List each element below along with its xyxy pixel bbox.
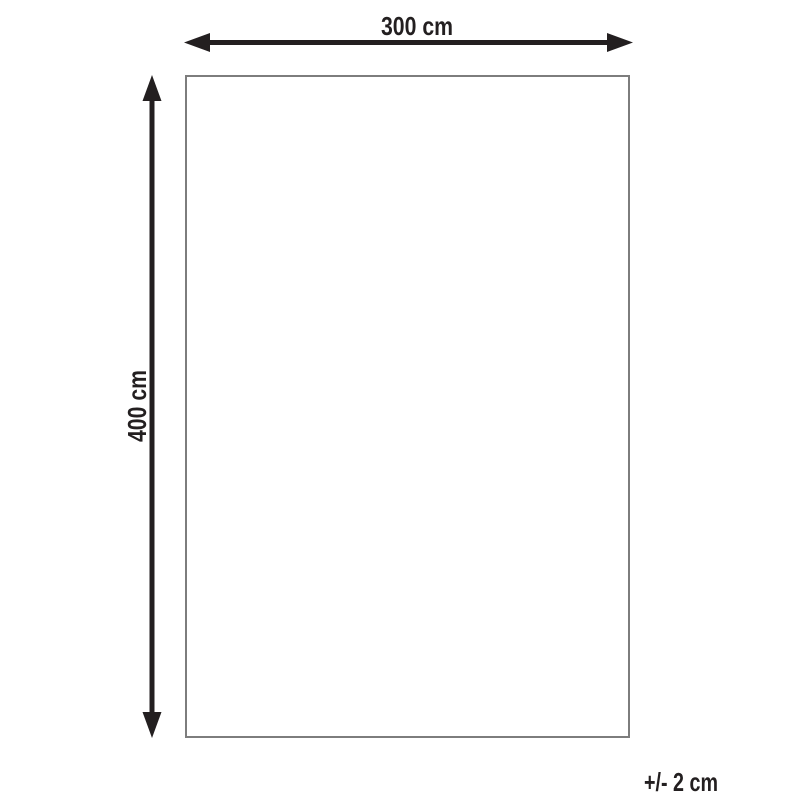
dimension-diagram: 300 cm 400 cm +/- 2 cm — [0, 0, 800, 800]
width-dimension-label: 300 cm — [381, 11, 453, 41]
height-arrowhead-top-icon — [143, 75, 162, 101]
product-outline-rect — [186, 76, 629, 737]
width-arrowhead-right-icon — [607, 33, 633, 52]
height-dimension-label: 400 cm — [122, 370, 152, 442]
width-arrowhead-left-icon — [184, 33, 210, 52]
tolerance-label: +/- 2 cm — [644, 767, 718, 797]
diagram-canvas: 300 cm 400 cm +/- 2 cm — [0, 0, 800, 800]
height-arrowhead-bottom-icon — [143, 712, 162, 738]
